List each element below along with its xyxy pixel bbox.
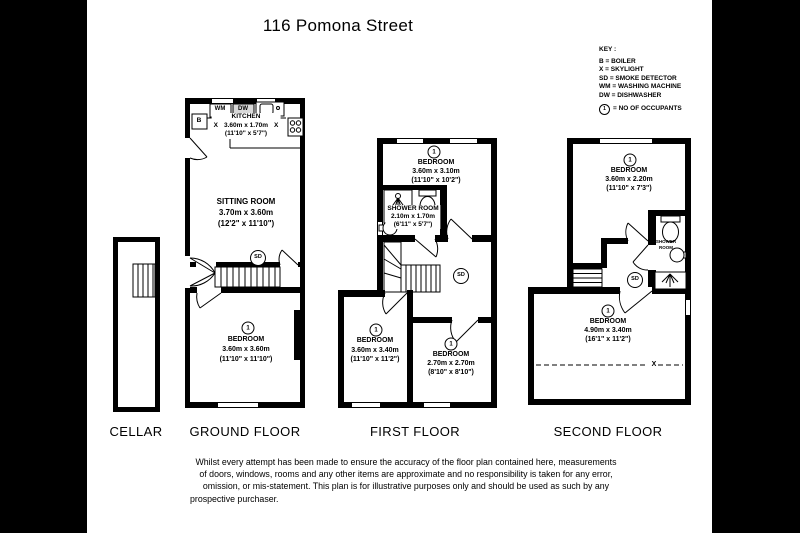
hob-icon	[288, 118, 303, 136]
room-metric: 2.10m x 1.70m	[387, 213, 438, 221]
cellar-plan	[110, 233, 165, 418]
basin-icon	[670, 248, 686, 262]
second-bedroom-bottom-label-block: BEDROOM 4.90m x 3.40m (16'1" x 11'2")	[584, 317, 631, 344]
first-floor-label: FIRST FLOOR	[370, 424, 460, 439]
skylight-symbol: X	[214, 122, 218, 131]
room-metric: 4.90m x 3.40m	[584, 326, 631, 335]
room-imperial: (11'10" x 11'10")	[220, 355, 273, 365]
second-doors	[619, 223, 652, 313]
second-fixtures	[655, 216, 686, 289]
room-imperial: (11'10" x 10'2")	[411, 176, 460, 185]
occupants-badge: 1	[602, 305, 615, 318]
occupants-circle-icon: 1	[599, 104, 610, 115]
room-name: BEDROOM	[220, 335, 273, 345]
key-item-boiler: B = BOILER	[599, 58, 682, 67]
shower-icon	[655, 272, 686, 289]
room-metric: 3.60m x 3.60m	[220, 345, 273, 355]
first-stairs	[384, 242, 440, 292]
room-imperial: (6'11" x 5'7")	[387, 221, 438, 229]
occupants-badge: 1	[624, 154, 637, 167]
room-imperial: (12'2" x 11'10")	[217, 218, 276, 229]
cellar-walls	[113, 237, 160, 412]
second-stairs	[573, 269, 602, 287]
skylight-symbol: X	[652, 361, 657, 368]
page-title: 116 Pomona Street	[263, 16, 413, 36]
kitchen-label-block: KITCHEN X 3.60m x 1.70m X (11'10" x 5'7"…	[212, 113, 281, 139]
room-metric: 3.60m x 1.70m	[224, 122, 268, 131]
key-item-skylight: X = SKYLIGHT	[599, 66, 682, 75]
room-metric: 3.60m x 2.20m	[605, 175, 652, 184]
ground-bedroom-label-block: BEDROOM 3.60m x 3.60m (11'10" x 11'10")	[220, 335, 273, 365]
floorplan-canvas: 116 Pomona Street KEY : B = BOILER X = S…	[0, 0, 800, 533]
second-shower-room-label: SHOWER ROOM	[653, 239, 679, 250]
key-legend: KEY : B = BOILER X = SKYLIGHT SD = SMOKE…	[599, 46, 682, 115]
smoke-detector-badge: SD	[627, 272, 643, 288]
room-name: BEDROOM	[584, 317, 631, 326]
room-imperial: (8'10" x 8'10")	[427, 368, 474, 377]
disclaimer-line: Whilst every attempt has been made to en…	[190, 456, 622, 468]
second-floor-label: SECOND FLOOR	[554, 424, 663, 439]
room-imperial: (11'10" x 7'3")	[605, 184, 652, 193]
key-item-washing-machine: WM = WASHING MACHINE	[599, 83, 682, 92]
disclaimer-line: omission, or mis-statement. This plan is…	[190, 480, 622, 492]
disclaimer: Whilst every attempt has been made to en…	[190, 456, 622, 505]
room-name: BEDROOM	[351, 336, 400, 346]
key-heading: KEY :	[599, 46, 682, 55]
washing-machine-symbol: WM	[215, 106, 226, 112]
occupants-badge: 1	[428, 146, 441, 159]
cellar-label: CELLAR	[110, 424, 163, 439]
room-name: KITCHEN	[214, 113, 279, 122]
chimney-breast	[294, 310, 300, 360]
room-metric: 3.70m x 3.60m	[217, 207, 276, 218]
ground-stairs	[215, 267, 280, 287]
key-occupants-label: = NO OF OCCUPANTS	[613, 105, 682, 114]
room-imperial: (11'10" x 11'2")	[351, 355, 400, 365]
kitchen-dim-line: X 3.60m x 1.70m X	[214, 122, 279, 131]
smoke-detector-badge: SD	[250, 250, 266, 266]
room-name: BEDROOM	[427, 350, 474, 359]
room-metric: 3.60m x 3.10m	[411, 167, 460, 176]
room-name: BEDROOM	[605, 166, 652, 175]
room-imperial: (16'1" x 11'2")	[584, 335, 631, 344]
disclaimer-line: of doors, windows, rooms and any other i…	[190, 468, 622, 480]
second-bedroom-top-label-block: BEDROOM 3.60m x 2.20m (11'10" x 7'3")	[605, 166, 652, 193]
key-item-occupants: 1 = NO OF OCCUPANTS	[599, 104, 682, 115]
room-name: BEDROOM	[411, 158, 460, 167]
first-bedroom-left-label-block: BEDROOM 3.60m x 3.40m (11'10" x 11'2")	[351, 336, 400, 365]
room-name: SHOWER ROOM	[387, 205, 438, 213]
first-bedroom-right-label-block: BEDROOM 2.70m x 2.70m (8'10" x 8'10")	[427, 350, 474, 377]
occupants-badge: 1	[242, 322, 255, 335]
cellar-stairs	[133, 264, 155, 297]
first-shower-room-label-block: SHOWER ROOM 2.10m x 1.70m (6'11" x 5'7")	[385, 205, 440, 229]
dishwasher-symbol: DW	[238, 106, 248, 112]
skylight-symbol: X	[274, 122, 278, 131]
sitting-room-label-block: SITTING ROOM 3.70m x 3.60m (12'2" x 11'1…	[217, 196, 276, 229]
disclaimer-line: prospective purchaser.	[190, 493, 622, 505]
occupants-badge: 1	[445, 338, 458, 351]
room-metric: 3.60m x 3.40m	[351, 346, 400, 356]
room-name: SITTING ROOM	[217, 196, 276, 207]
first-bedroom-top-label-block: BEDROOM 3.60m x 3.10m (11'10" x 10'2")	[411, 158, 460, 185]
key-item-smoke-detector: SD = SMOKE DETECTOR	[599, 75, 682, 84]
room-metric: 2.70m x 2.70m	[427, 359, 474, 368]
smoke-detector-badge: SD	[453, 268, 469, 284]
key-item-dishwasher: DW = DISHWASHER	[599, 92, 682, 101]
ground-floor-label: GROUND FLOOR	[190, 424, 301, 439]
boiler-symbol: B	[197, 117, 202, 124]
room-imperial: (11'10" x 5'7")	[214, 130, 279, 139]
occupants-badge: 1	[370, 324, 383, 337]
